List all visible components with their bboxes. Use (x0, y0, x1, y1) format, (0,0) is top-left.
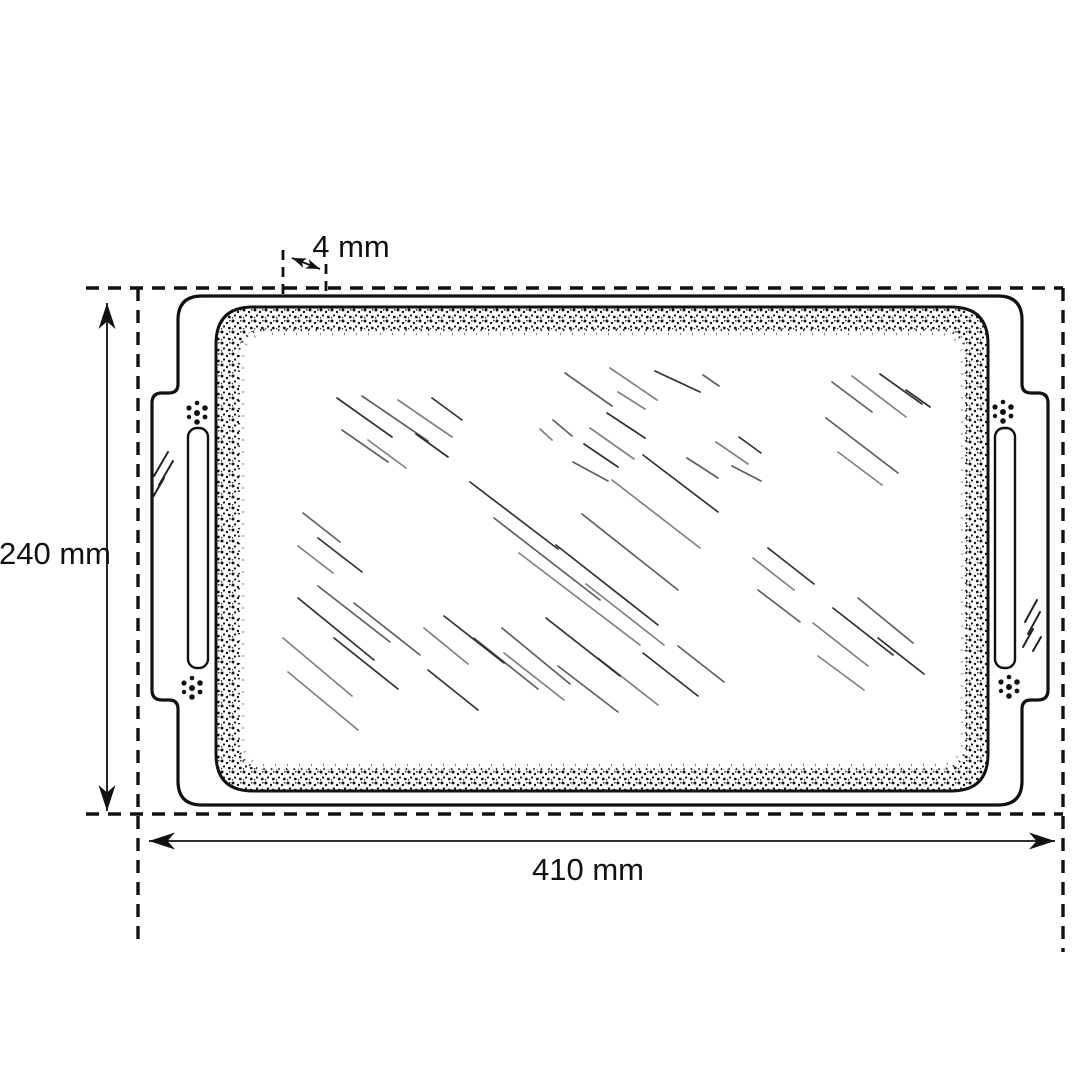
width-dimension-label: 410 mm (532, 852, 644, 887)
height-dimension-label: 240 mm (0, 536, 111, 571)
left-handle-bar (188, 428, 208, 668)
right-handle-bar (995, 428, 1015, 668)
height-dimension: 240 mm (0, 303, 111, 811)
tray (152, 296, 1048, 805)
tray-dimension-diagram: 240 mm 410 mm 4 mm (0, 0, 1080, 1080)
rim-thickness-dimension: 4 mm (292, 229, 390, 269)
tray-outline (152, 296, 1048, 805)
width-dimension: 410 mm (149, 841, 1055, 887)
rim-dimension-label: 4 mm (312, 229, 390, 264)
